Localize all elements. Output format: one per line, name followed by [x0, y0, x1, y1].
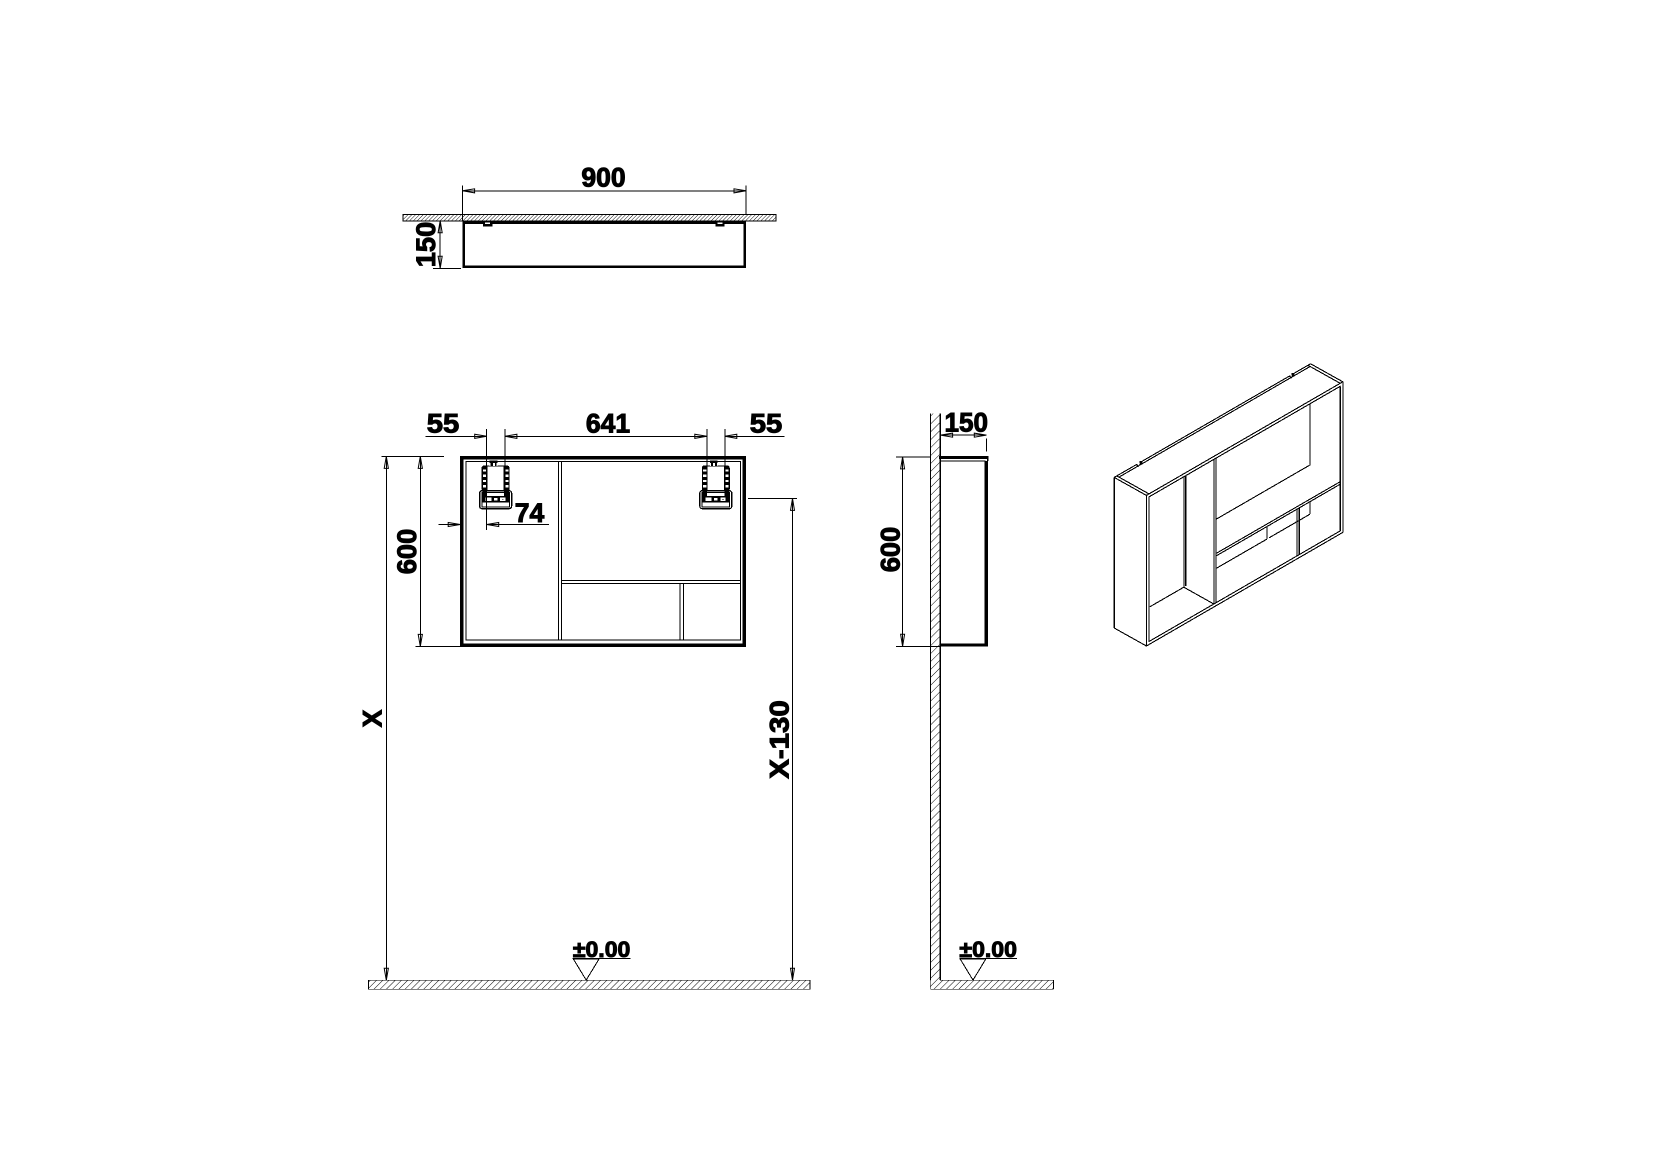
svg-text:900: 900	[581, 163, 625, 193]
svg-text:600: 600	[876, 527, 906, 573]
svg-text:55: 55	[750, 409, 783, 439]
svg-text:X-130: X-130	[764, 700, 794, 779]
svg-text:55: 55	[427, 409, 460, 439]
svg-text:74: 74	[515, 498, 545, 528]
svg-text:641: 641	[586, 409, 630, 439]
svg-text:X: X	[358, 709, 388, 727]
svg-text:150: 150	[945, 408, 989, 438]
svg-text:600: 600	[392, 529, 422, 575]
svg-text:150: 150	[411, 222, 441, 268]
